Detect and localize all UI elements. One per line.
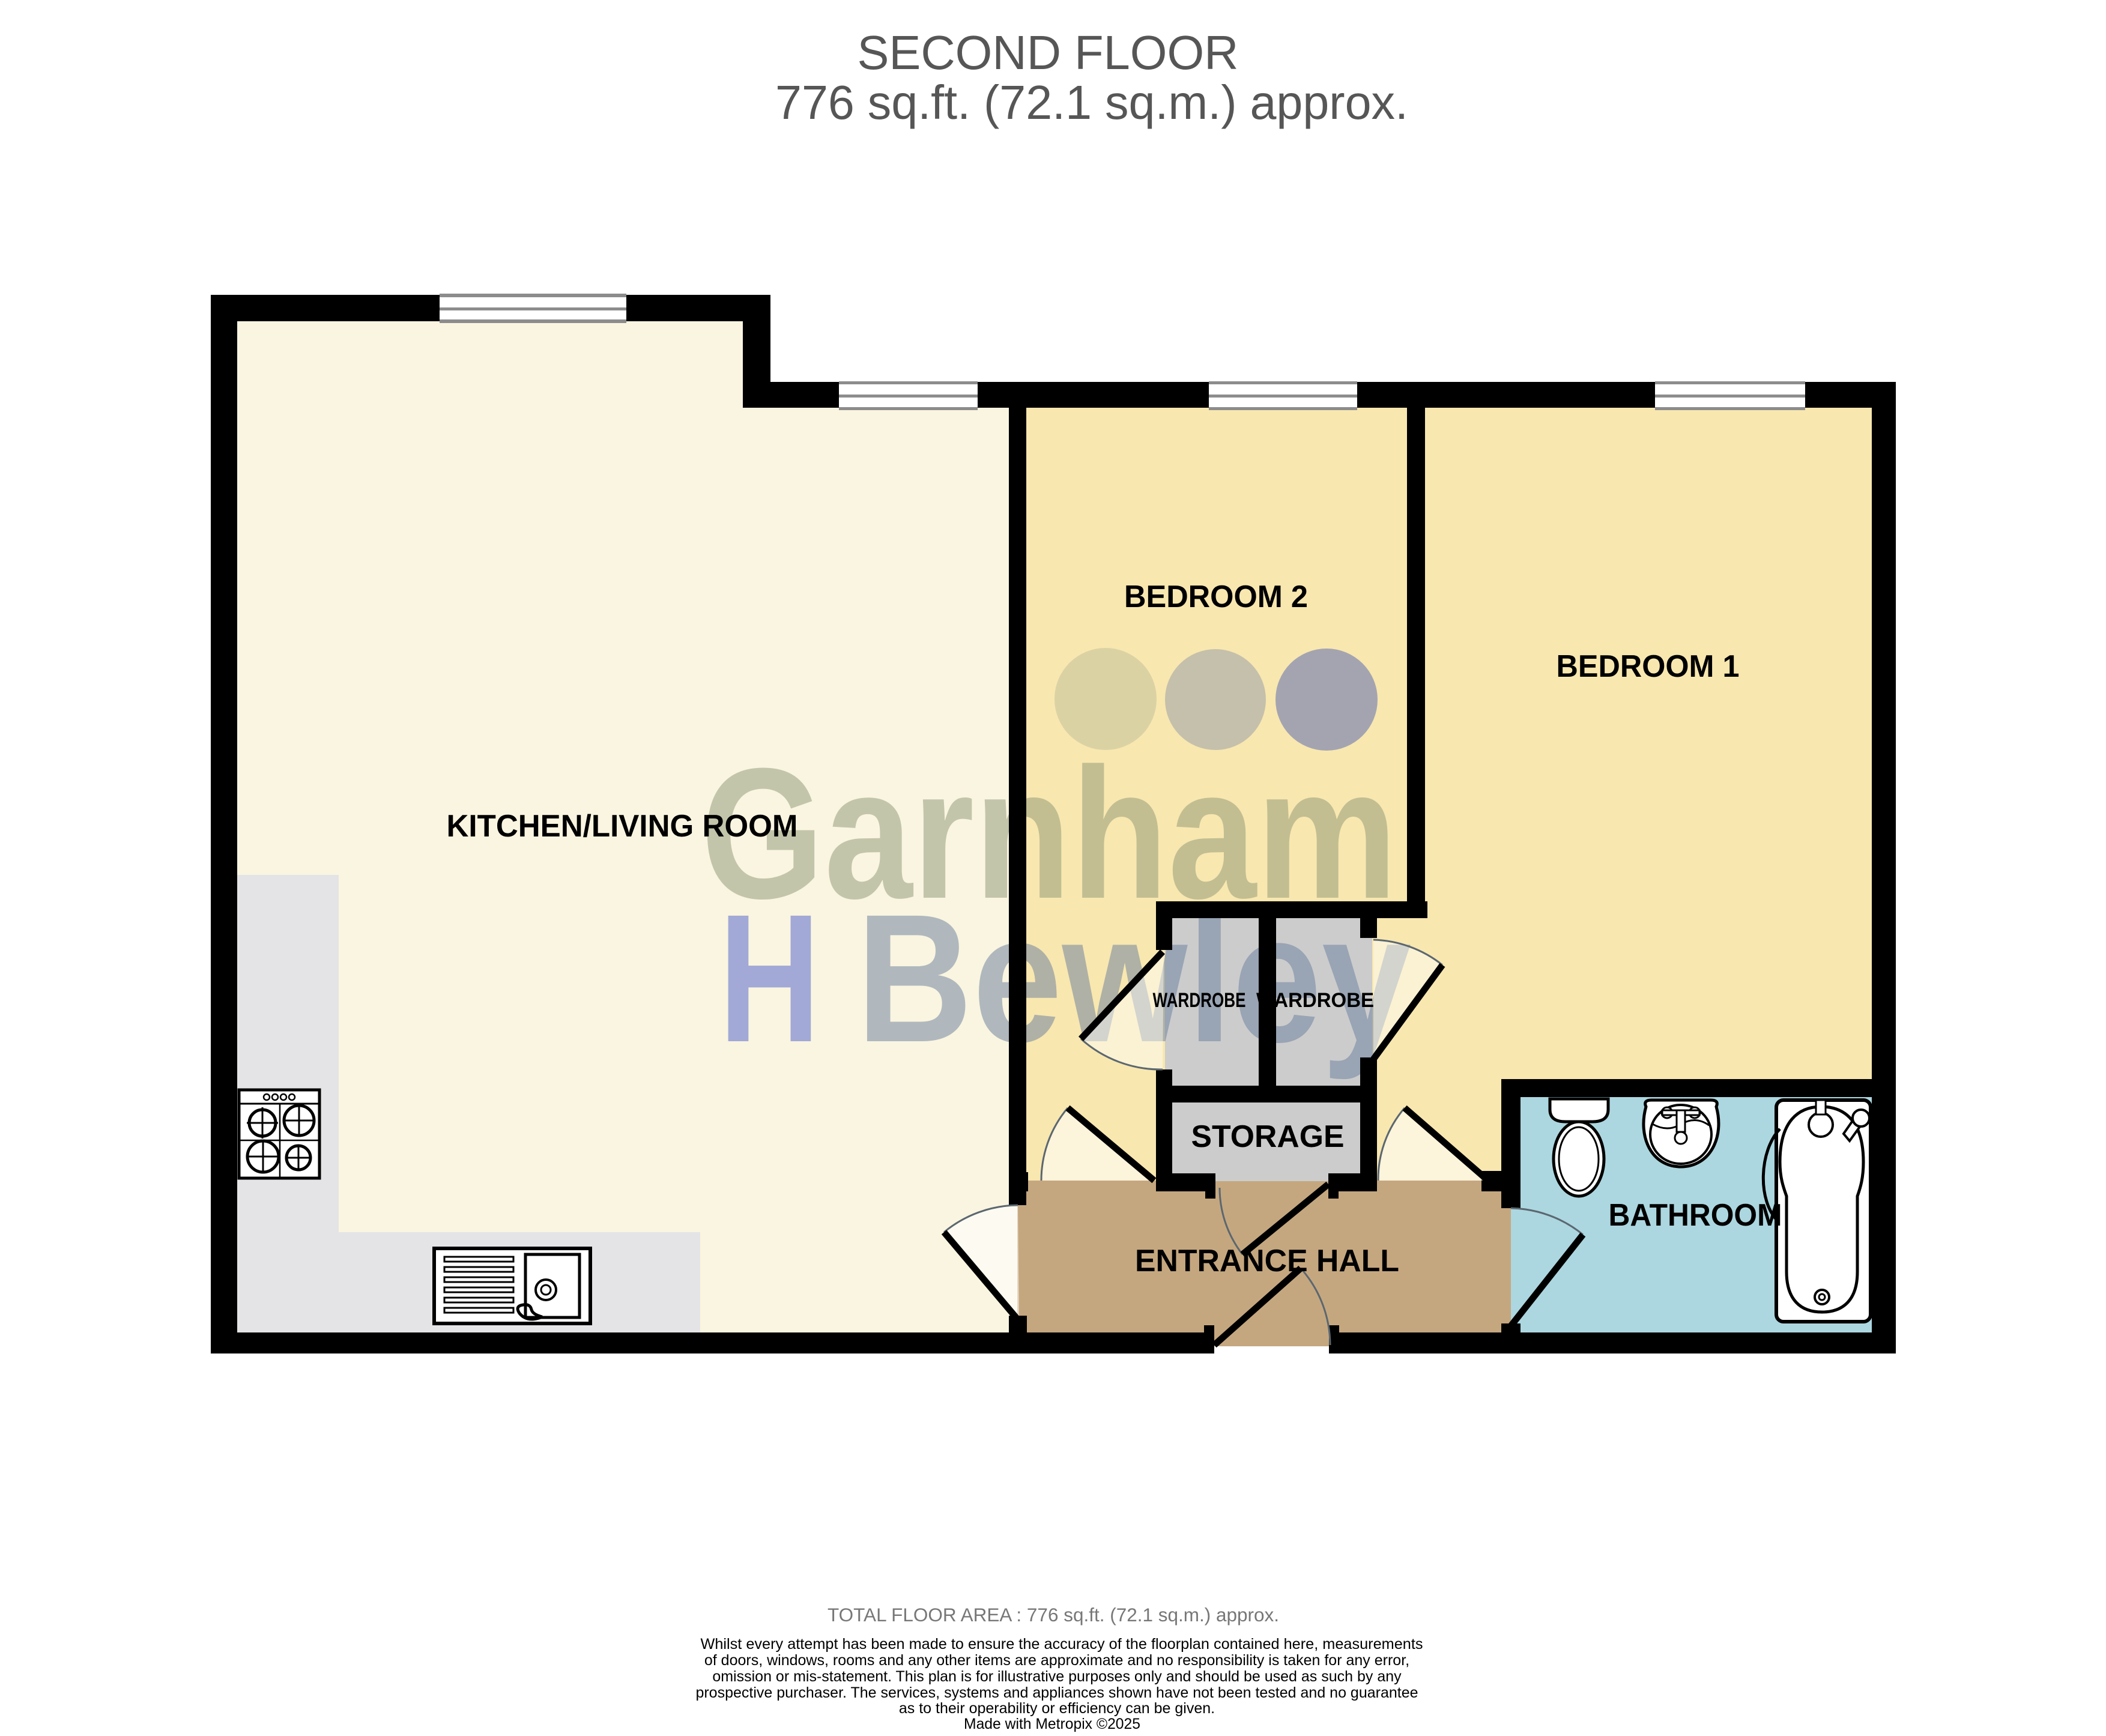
svg-text:H: H: [719, 877, 820, 1080]
svg-text:prospective purchaser. The ser: prospective purchaser. The services, sys…: [695, 1684, 1418, 1701]
svg-text:Whilst every attempt has been: Whilst every attempt has been made to en…: [701, 1636, 1423, 1653]
svg-text:of doors, windows, rooms and a: of doors, windows, rooms and any other i…: [704, 1652, 1409, 1669]
svg-text:as to their operability or eff: as to their operability or efficiency ca…: [899, 1700, 1215, 1717]
svg-text:SECOND FLOOR: SECOND FLOOR: [858, 26, 1239, 79]
svg-text:omission or mis-statement. Thi: omission or mis-statement. This plan is …: [712, 1668, 1402, 1685]
svg-text:BATHROOM: BATHROOM: [1609, 1198, 1782, 1233]
svg-text:BEDROOM 1: BEDROOM 1: [1557, 649, 1740, 684]
svg-text:Made with Metropix ©2025: Made with Metropix ©2025: [964, 1716, 1140, 1732]
svg-text:WARDROBE: WARDROBE: [1153, 989, 1246, 1012]
svg-text:WARDROBE: WARDROBE: [1256, 989, 1374, 1012]
svg-text:STORAGE: STORAGE: [1191, 1119, 1345, 1154]
svg-text:776 sq.ft. (72.1 sq.m.) approx: 776 sq.ft. (72.1 sq.m.) approx.: [775, 76, 1408, 129]
svg-text:ENTRANCE HALL: ENTRANCE HALL: [1135, 1244, 1399, 1278]
svg-text:TOTAL FLOOR AREA : 776 sq.ft.: TOTAL FLOOR AREA : 776 sq.ft. (72.1 sq.m…: [828, 1604, 1279, 1626]
svg-text:KITCHEN/LIVING ROOM: KITCHEN/LIVING ROOM: [447, 809, 798, 844]
svg-text:BEDROOM 2: BEDROOM 2: [1124, 579, 1308, 614]
